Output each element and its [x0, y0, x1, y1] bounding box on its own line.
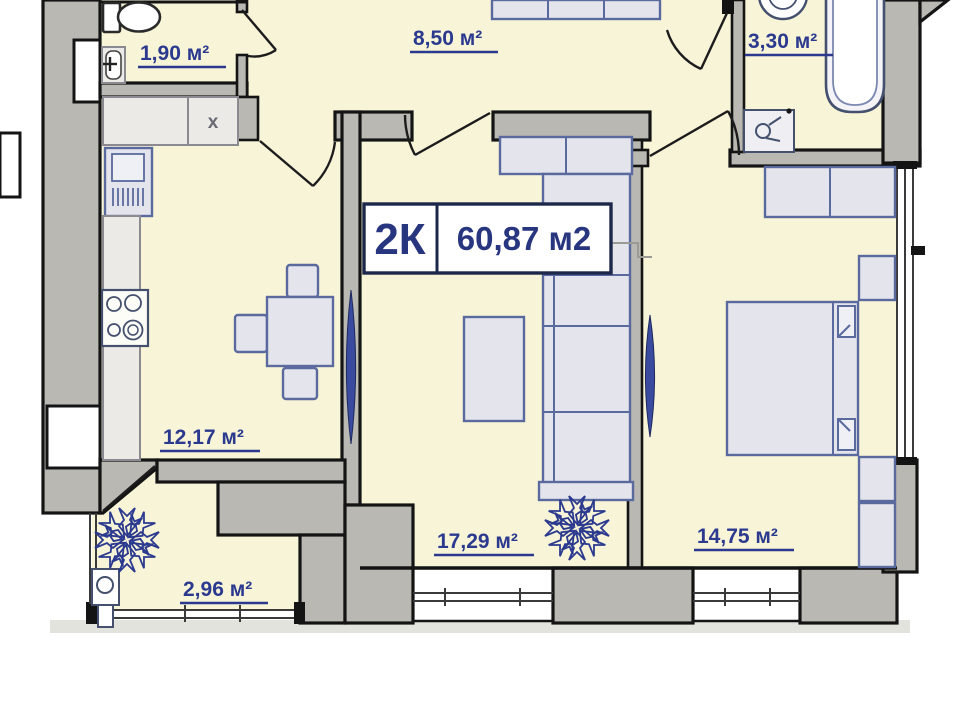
room-label-bedroom: 14,75 м² — [697, 525, 778, 548]
wall-kitchen-jamb — [237, 97, 258, 140]
wall-balcony-right-lower — [300, 535, 345, 623]
nightstand-icon — [859, 256, 895, 300]
wall-bathroom-left — [732, 0, 744, 152]
toilet-bowl-icon — [118, 3, 160, 32]
wall-living-bottom-left — [345, 505, 413, 623]
kitchen-cabinet — [103, 97, 188, 145]
floorplan-drawing: x — [0, 0, 960, 720]
total-area-label: 60,87 м2 — [457, 220, 592, 257]
chair-icon — [283, 368, 317, 399]
room-label-wc: 1,90 м² — [140, 42, 209, 65]
bed-icon — [727, 302, 858, 455]
wall-bottom-right — [800, 568, 897, 623]
chair-icon — [287, 265, 318, 297]
wall-bottom-middle — [553, 568, 693, 623]
room-label-balcony: 2,96 м² — [183, 578, 252, 601]
room-label-living: 17,29 м² — [437, 530, 518, 553]
wall-kitchen-balcony — [157, 460, 345, 482]
wardrobe-icon — [492, 0, 660, 19]
title-block: 2К 60,87 м2 — [364, 204, 652, 273]
nightstand-icon — [859, 457, 895, 501]
fridge-icon — [105, 148, 152, 216]
room-label-kitchen: 12,17 м² — [163, 426, 244, 449]
stove-icon — [102, 290, 148, 346]
wall-wc-bottom — [100, 83, 247, 97]
wall-niche-bottom — [47, 406, 100, 468]
pillow-icon — [838, 306, 855, 337]
cabinet-mark: x — [208, 112, 219, 133]
wall-niche-top — [74, 40, 100, 102]
washing-machine-icon — [744, 108, 794, 152]
chair-icon — [235, 315, 267, 352]
room-label-bath: 3,30 м² — [748, 30, 817, 53]
bathroom-door-hinge — [722, 0, 734, 14]
wall-box-left — [0, 133, 20, 197]
wall-wc-right — [237, 55, 247, 97]
wall-top-right-angle — [920, 0, 948, 22]
coffee-table-icon — [464, 317, 524, 421]
wall-balcony-right-upper — [218, 482, 345, 535]
wall-right-top-exterior — [883, 0, 920, 163]
room-label-hall: 8,50 м² — [413, 27, 482, 50]
bedroom-cabinet-icon — [859, 503, 895, 567]
pillow-icon — [838, 419, 855, 450]
dining-table-icon — [267, 297, 333, 366]
balcony-corner-post — [294, 602, 305, 624]
bathtub-icon — [826, 0, 884, 112]
floorplan-page: x — [0, 0, 960, 720]
window-tie-mark — [911, 246, 925, 255]
apartment-type-label: 2К — [374, 215, 425, 264]
